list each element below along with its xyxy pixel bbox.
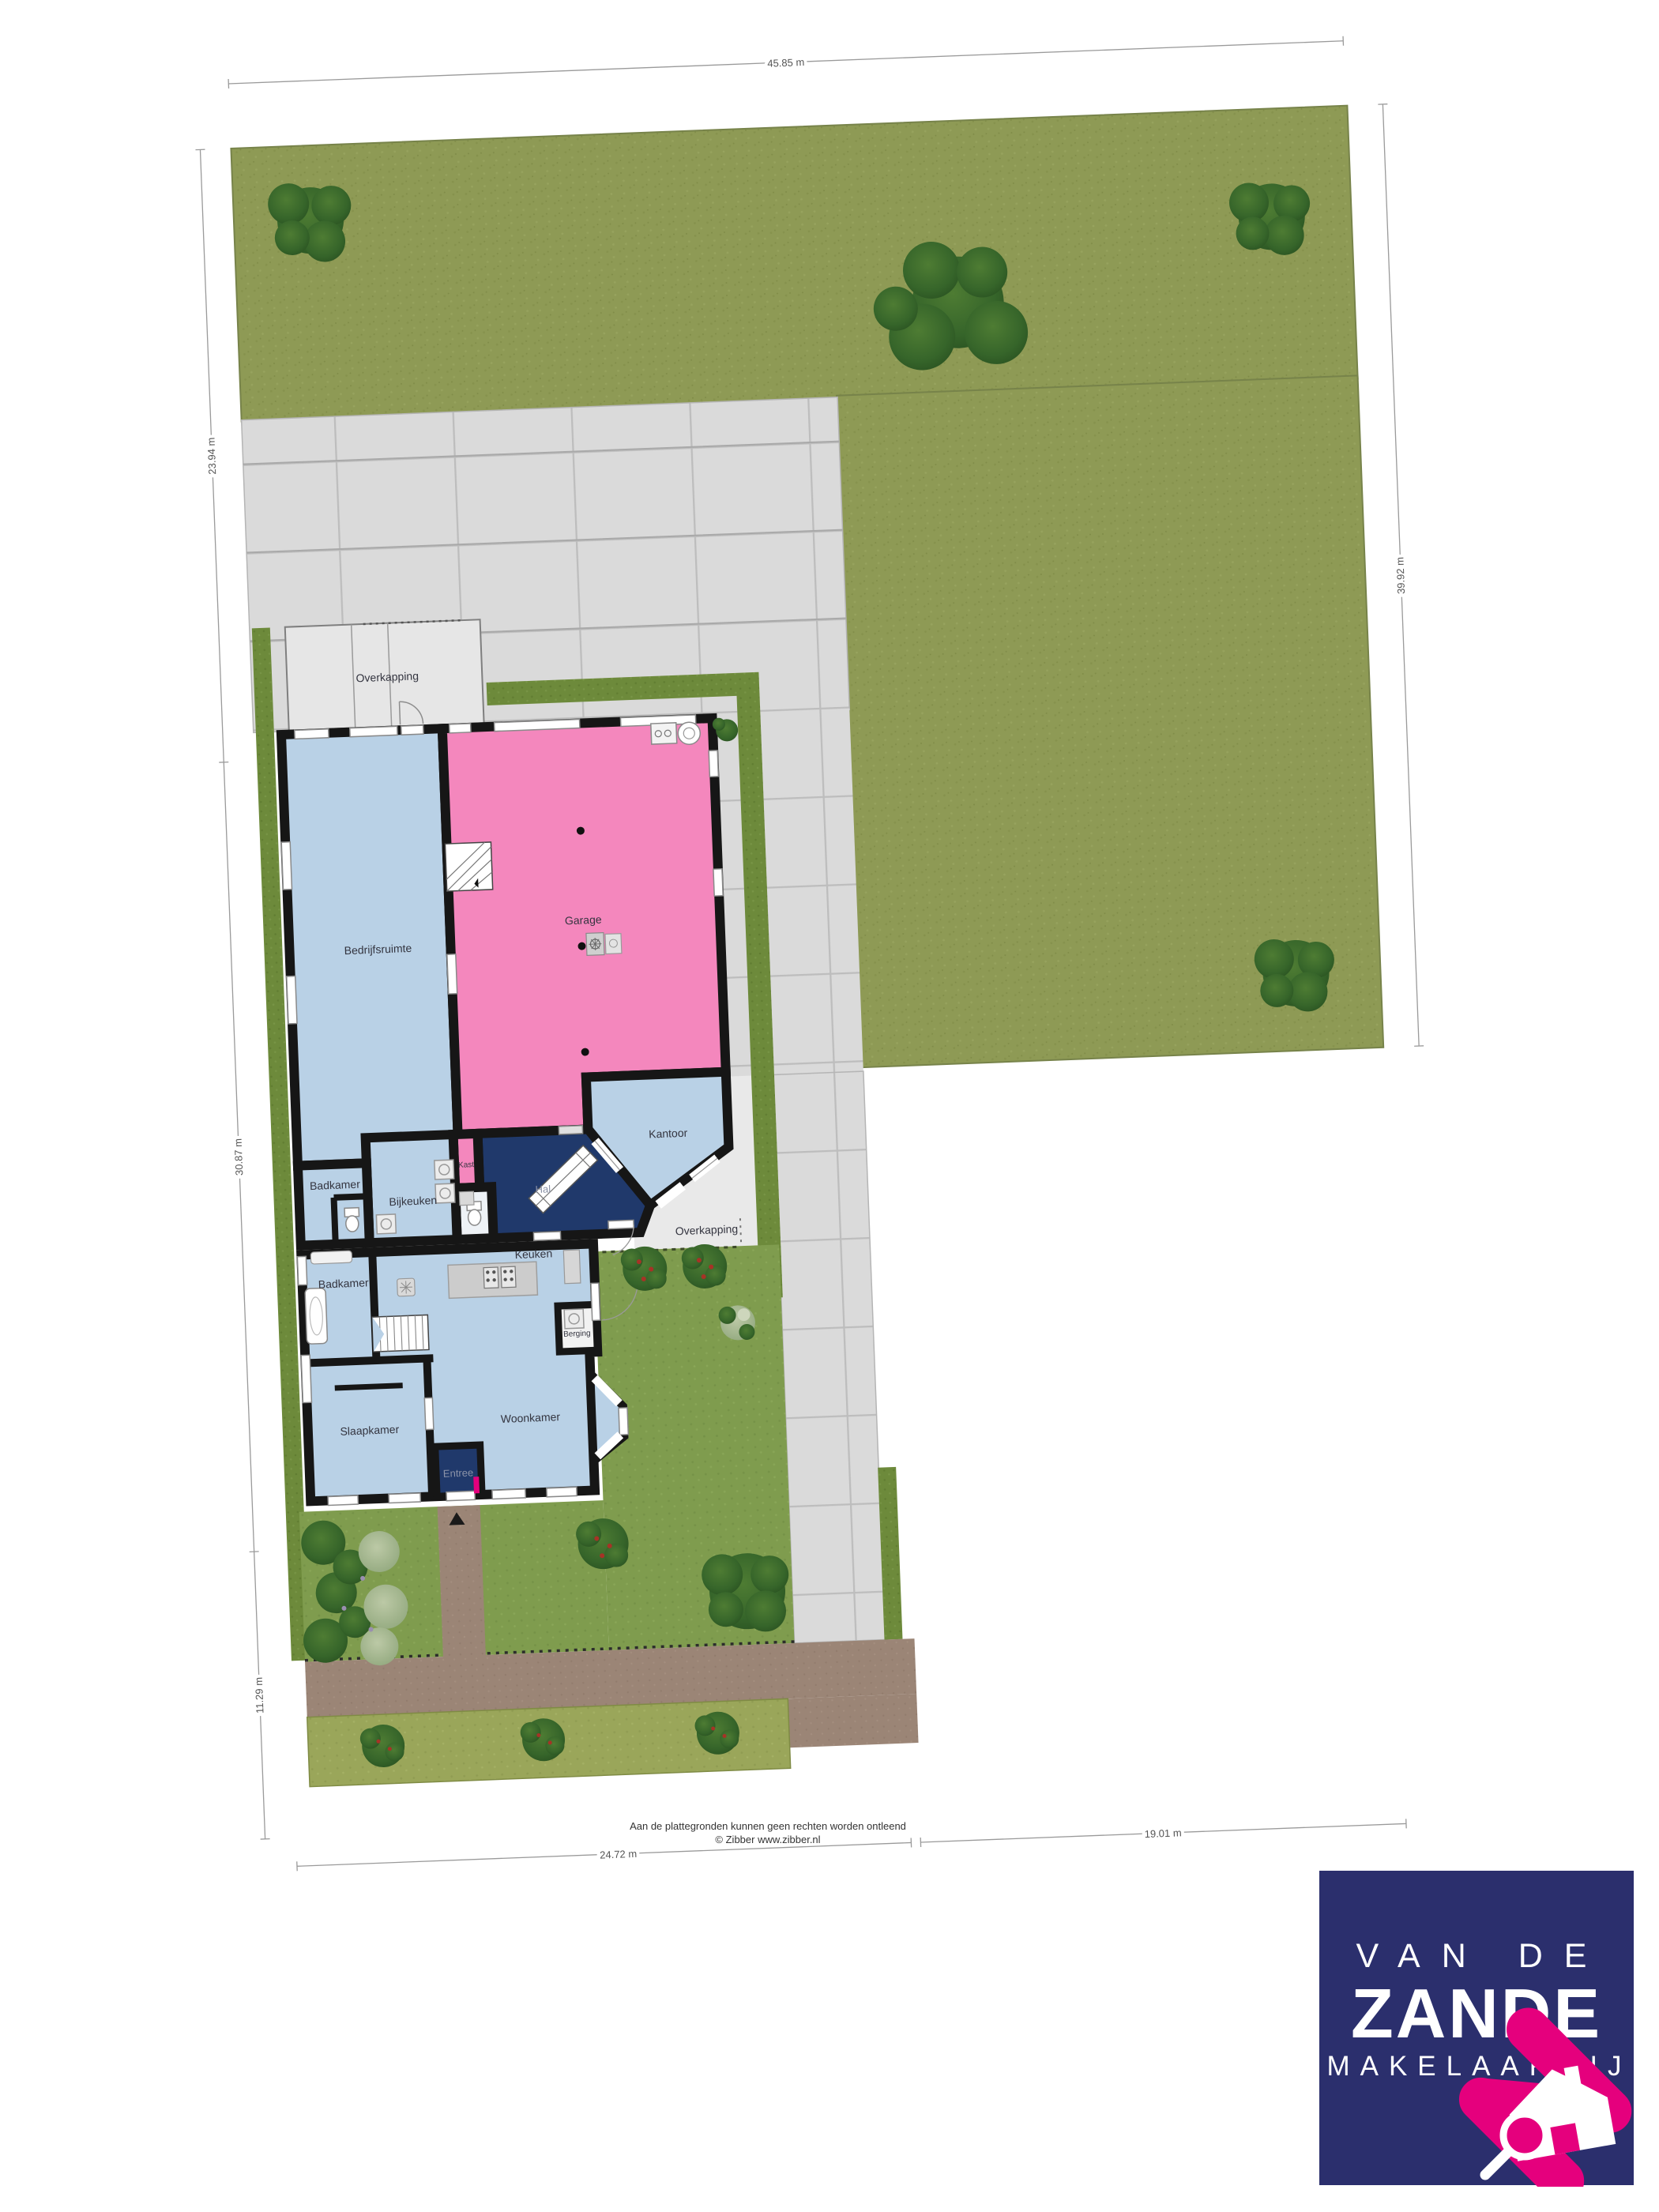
dim-right: 39.92 m [1394,557,1407,595]
label-hal: Hal [535,1183,551,1195]
washer-icon [564,1309,584,1329]
dim-left-upper: 23.94 m [205,437,218,475]
stair-bedrijfsruimte [445,842,492,891]
label-slaapkamer: Slaapkamer [340,1423,400,1438]
label-keuken: Keuken [514,1247,552,1261]
footer-copyright: © Zibber www.zibber.nl [373,1833,1163,1846]
label-bijkeuken: Bijkeuken [389,1194,437,1208]
logo-house-icon [1430,1989,1635,2187]
footer-disclaimer: Aan de plattegronden kunnen geen rechten… [373,1819,1163,1833]
label-entree: Entree [443,1466,474,1479]
site-plan-page: Overkapping Bedrijfsruimte Garage Kast H… [0,0,1659,2212]
rotated-plan: Overkapping Bedrijfsruimte Garage Kast H… [191,34,1454,1874]
label-woonkamer: Woonkamer [501,1410,561,1425]
dim-bottom-left: 24.72 m [600,1848,638,1861]
logo-line1: VAN DE [1319,1937,1634,1976]
label-berging: Berging [563,1330,591,1339]
tree [701,1552,791,1634]
stair-woonkamer [372,1315,429,1352]
label-kast: Kast [458,1161,475,1170]
toilet-icon [344,1208,359,1232]
shower-icon [459,1191,474,1206]
label-overkapping-zij: Overkapping [675,1222,738,1237]
footer: Aan de plattegronden kunnen geen rechten… [373,1819,1163,1846]
label-kantoor: Kantoor [649,1127,688,1141]
washer-icon [435,1183,455,1203]
kitchen-counter [563,1250,581,1284]
label-badkamer-boven: Badkamer [310,1178,361,1192]
boiler-icons [651,722,701,746]
tree [1254,937,1336,1014]
washer-icon [376,1214,396,1234]
dim-left-middle: 30.87 m [232,1138,246,1176]
label-badkamer-onder: Badkamer [318,1276,370,1290]
washer-icon [434,1160,454,1179]
dim-left-lower: 11.29 m [253,1677,266,1714]
label-bedrijfsruimte: Bedrijfsruimte [344,942,412,957]
label-overkapping-top: Overkapping [355,669,419,684]
label-garage: Garage [565,913,602,927]
dim-top: 45.85 m [767,56,805,70]
company-logo: VAN DE ZANDE MAKELAARDIJ [1319,1871,1634,2185]
bath-bench [310,1251,352,1264]
bathtub [305,1288,328,1344]
entree-accent [473,1477,480,1493]
